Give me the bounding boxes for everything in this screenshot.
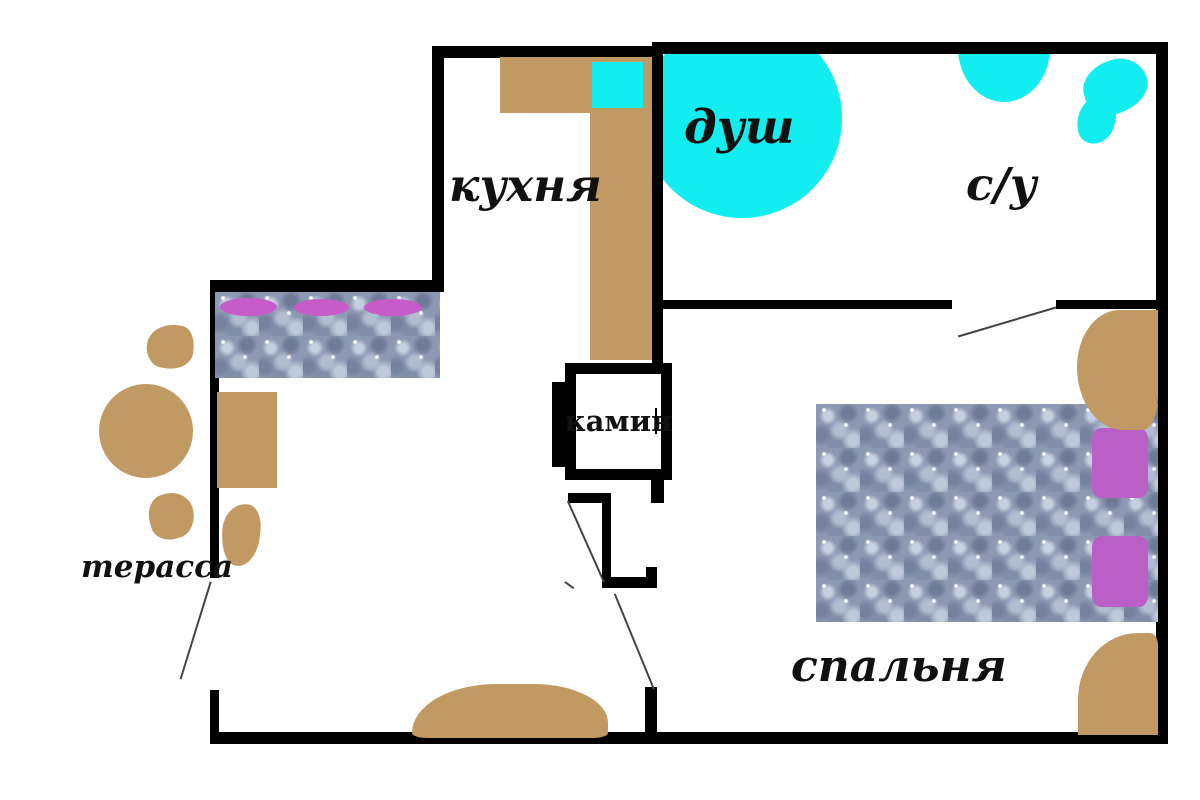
wall-bathroom-bottom-right <box>1056 300 1157 309</box>
entry-rug <box>412 684 608 738</box>
bathroom-interior <box>663 54 1156 300</box>
room-label-shower: душ <box>684 104 795 151</box>
room-label-terrace: терасса <box>81 552 233 583</box>
wall-bathroom-left <box>652 42 663 370</box>
wall-corridor-right-stub <box>651 480 664 503</box>
terrace-table <box>99 384 193 478</box>
wall-corridor-door-jamb <box>602 493 611 585</box>
terrace-chair-bottom <box>144 488 199 544</box>
wall-kitchen-left <box>432 46 444 292</box>
door-swing-tick <box>565 581 575 589</box>
fireplace-inner-line <box>655 408 657 434</box>
living-cabinet <box>217 392 277 488</box>
wall-bathroom-top <box>652 42 1168 54</box>
wall-bedroom-left-stub <box>645 687 657 737</box>
door-swing-terrace <box>180 582 212 680</box>
sofa-pillow-3 <box>364 299 422 316</box>
wall-corridor-door-cap-top <box>568 493 610 503</box>
bed-pillow-bottom <box>1092 536 1148 607</box>
bedroom-plant-bottom <box>1078 633 1158 735</box>
room-label-bedroom: спальня <box>791 645 1007 689</box>
wall-living-top <box>210 280 444 292</box>
floor-plan: камин кухня душ с/у спальня терасса <box>0 0 1200 800</box>
wall-corridor-door-lip <box>646 567 657 579</box>
door-swing-bathroom <box>958 307 1056 337</box>
terrace-chair-top <box>143 320 198 374</box>
room-label-bathroom: с/у <box>966 162 1037 207</box>
door-swing-corridor-lower <box>614 593 654 689</box>
wall-bathroom-bottom-left <box>657 300 952 309</box>
wash-basin <box>958 54 1050 102</box>
door-swing-corridor-upper <box>567 500 605 582</box>
wall-bottom <box>210 732 1167 744</box>
sofa-pillow-2 <box>294 299 349 316</box>
sofa-pillow-1 <box>220 298 277 316</box>
fireplace-chimney <box>552 382 567 467</box>
bed-pillow-top <box>1092 428 1148 498</box>
room-label-kitchen: кухня <box>449 163 602 208</box>
kitchen-sink <box>592 62 643 108</box>
